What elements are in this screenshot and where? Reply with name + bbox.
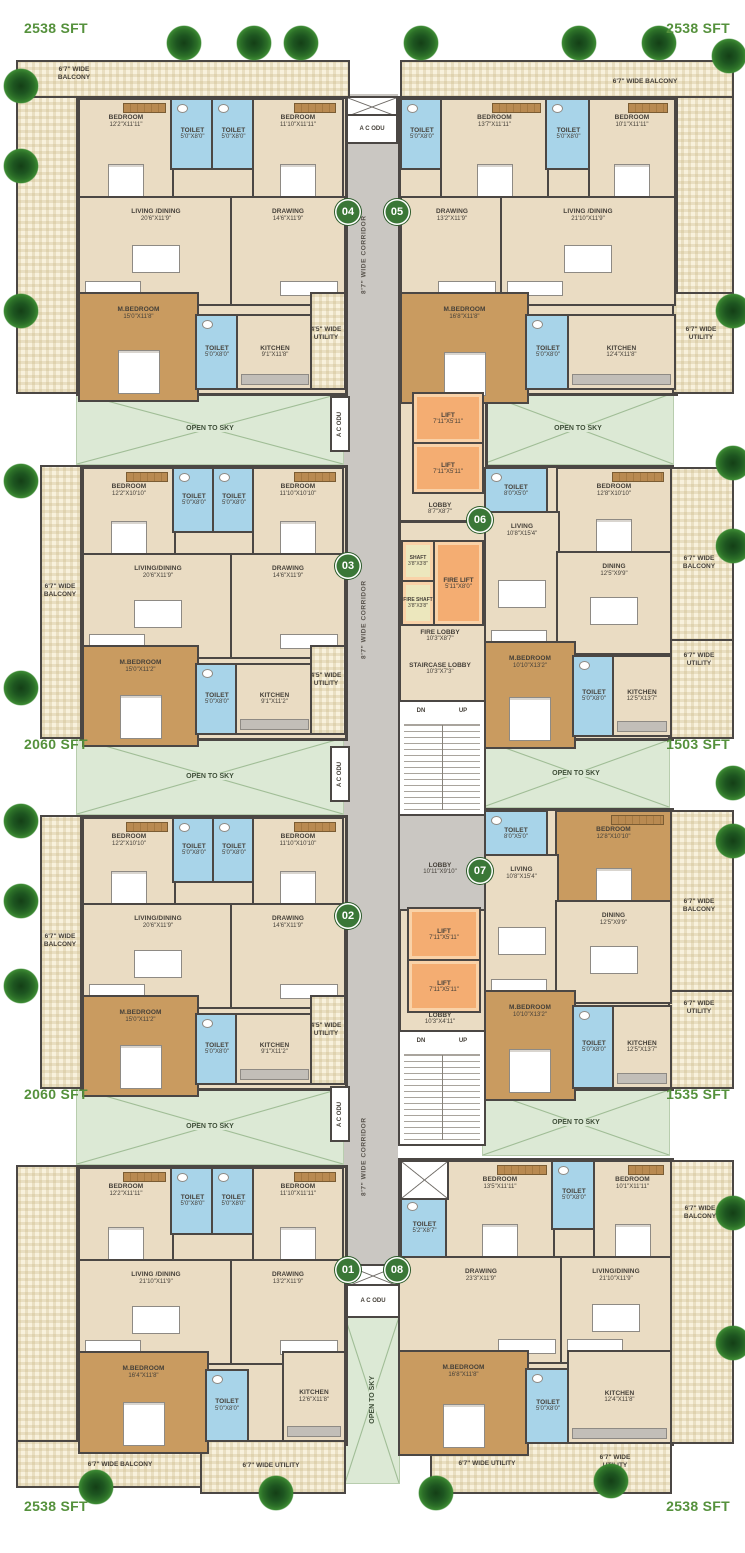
open-to-sky-strip: OPEN TO SKY (76, 1087, 344, 1165)
unit-03-utility (310, 645, 346, 735)
tree-icon (3, 803, 39, 839)
unit-08-drawing: DRAWING23'3"X11'9" (398, 1256, 564, 1364)
unit-04-master-bedroom: M.BEDROOM15'0"X11'8" (78, 292, 199, 402)
unit-03-utility-label: 4'5" WIDE UTILITY (304, 672, 348, 688)
stair-dn-label: DN (406, 708, 436, 714)
sft-bottom-right: 2538 SFT (630, 1498, 730, 1514)
unit-04-balcony-label: 6'7" WIDE BALCONY (38, 66, 110, 82)
ac-odu-label-top: A C ODU (346, 114, 398, 144)
unit-04-utility-label: 4'5" WIDE UTILITY (304, 326, 348, 342)
tree-icon (258, 1475, 294, 1511)
unit-08-living-dining: LIVING/DINING21'10"X11'9" (560, 1256, 672, 1364)
unit-04-living-dining: LIVING /DINING20'6"X11'9" (78, 196, 234, 306)
stair-dn-label: DN (406, 1038, 436, 1044)
tree-icon (3, 463, 39, 499)
tree-icon (715, 293, 745, 329)
lift-2: LIFT7'11"X5'11" (412, 442, 484, 494)
unit-03-drawing: DRAWING14'6"X11'9" (230, 553, 346, 659)
unit-07-balcony-label: 6'7" WIDE BALCONY (670, 898, 728, 914)
open-to-sky-label: OPEN TO SKY (183, 773, 237, 780)
unit-03-balcony-left (40, 465, 84, 739)
unit-03-toilet-3: TOILET5'0"X8'0" (195, 663, 239, 735)
unit-06-dining: DINING12'5"X9'9" (556, 551, 672, 655)
unit-01-toilet-2: TOILET5'0"X8'0" (211, 1167, 256, 1235)
unit-07-living: LIVING10'8"X15'4" (484, 854, 559, 1004)
unit-05-toilet-1: TOILET5'0"X8'0" (400, 98, 444, 170)
shaft: SHAFT3'8"X3'8" (401, 540, 435, 582)
unit-06-toilet-1: TOILET8'0"X5'0" (484, 467, 548, 515)
unit-badge-02: 02 (335, 903, 361, 929)
sft-mid-left-lower: 2060 SFT (24, 1086, 114, 1102)
unit-04-balcony-left (16, 96, 80, 394)
unit-badge-01: 01 (335, 1257, 361, 1283)
fire-shaft: FIRE SHAFT3'8"X3'8" (401, 580, 435, 626)
unit-05-toilet-2: TOILET5'0"X8'0" (545, 98, 592, 170)
open-to-sky-strip: OPEN TO SKY (344, 1316, 400, 1484)
unit-04-toilet-3: TOILET5'0"X8'0" (195, 314, 239, 390)
unit-badge-07: 07 (467, 858, 493, 884)
tree-icon (715, 1195, 745, 1231)
tree-icon (711, 38, 745, 74)
unit-06-utility-label: 6'7" WIDE UTILITY (670, 652, 728, 668)
unit-08-toilet-1: TOILET5'2"X8'7" (400, 1196, 449, 1260)
unit-02-balcony-label: 6'7" WIDE BALCONY (36, 933, 84, 949)
unit-03-kitchen: KITCHEN9'1"X11'2" (235, 663, 314, 735)
stair-up-label: UP (448, 1038, 478, 1044)
lift-3: LIFT7'11"X5'11" (407, 907, 481, 961)
unit-04-kitchen: KITCHEN9'1"X11'8" (236, 314, 314, 390)
open-to-sky-label: OPEN TO SKY (549, 770, 603, 777)
unit-05-utility-label: 6'7" WIDE UTILITY (674, 326, 728, 342)
unit-03-toilet-2: TOILET5'0"X8'0" (212, 467, 256, 533)
sft-mid-right-lower: 1535 SFT (645, 1086, 730, 1102)
unit-06-living: LIVING10'8"X15'4" (484, 511, 560, 655)
unit-03-living-dining: LIVING/DINING20'6"X11'9" (82, 553, 234, 659)
unit-06-master-bedroom: M.BEDROOM10'10"X13'2" (484, 641, 576, 749)
unit-07-toilet-2: TOILET5'0"X8'0" (572, 1005, 616, 1089)
unit-02-drawing: DRAWING14'6"X11'9" (230, 903, 346, 1009)
tree-icon (715, 445, 745, 481)
unit-badge-03: 03 (335, 553, 361, 579)
unit-07-master-bedroom: M.BEDROOM10'10"X13'2" (484, 990, 576, 1101)
unit-05-balcony-label: 6'7" WIDE BALCONY (580, 78, 710, 86)
unit-05-balcony-right (672, 96, 734, 298)
tree-icon (3, 68, 39, 104)
tree-icon (593, 1463, 629, 1499)
tree-icon (715, 528, 745, 564)
unit-03-master-bedroom: M.BEDROOM15'0"X11'2" (82, 645, 199, 747)
tree-icon (3, 670, 39, 706)
unit-03-balcony-label: 6'7" WIDE BALCONY (36, 583, 84, 599)
unit-02-toilet-2: TOILET5'0"X8'0" (212, 817, 256, 883)
unit-01-balcony-label: 6'7" WIDE BALCONY (55, 1461, 185, 1469)
unit-08-utility-label-left: 6'7" WIDE UTILITY (432, 1460, 542, 1468)
ac-odu-label-mid-2: A C ODU (330, 746, 350, 802)
unit-04-toilet-2: TOILET5'0"X8'0" (211, 98, 256, 170)
unit-01-drawing: DRAWING13'2"X11'9" (230, 1259, 346, 1365)
unit-08-shaft-hatch (400, 1160, 449, 1200)
unit-01-kitchen: KITCHEN12'6"X11'8" (282, 1351, 346, 1442)
unit-02-kitchen: KITCHEN9'1"X11'2" (235, 1013, 314, 1085)
unit-badge-04: 04 (335, 199, 361, 225)
unit-01-toilet-1: TOILET5'0"X8'0" (170, 1167, 215, 1235)
unit-badge-05: 05 (384, 199, 410, 225)
ac-odu-label-bottom: A C ODU (346, 1284, 400, 1318)
open-to-sky-label: OPEN TO SKY (549, 1119, 603, 1126)
unit-07-kitchen: KITCHEN12'5"X13'7" (612, 1005, 672, 1089)
unit-02-toilet-3: TOILET5'0"X8'0" (195, 1013, 239, 1085)
unit-04-drawing: DRAWING14'6"X11'9" (230, 196, 346, 306)
unit-04-toilet-1: TOILET5'0"X8'0" (170, 98, 215, 170)
unit-08-toilet-3: TOILET5'0"X8'0" (525, 1368, 571, 1444)
tree-icon (3, 148, 39, 184)
unit-05-drawing: DRAWING13'2"X11'9" (400, 196, 504, 306)
staircase-upper: DN UP (398, 700, 486, 816)
unit-05-kitchen: KITCHEN12'4"X11'8" (567, 314, 676, 390)
unit-07-dining: DINING12'5"X9'9" (555, 900, 672, 1004)
unit-05-toilet-3: TOILET5'0"X8'0" (525, 314, 571, 390)
tree-icon (418, 1475, 454, 1511)
unit-02-utility (310, 995, 346, 1085)
stair-treads (404, 1054, 480, 1140)
lobby-lower-label: LOBBY10'3"X4'11" (398, 1008, 482, 1030)
unit-02-balcony-left (40, 815, 84, 1089)
unit-02-master-bedroom: M.BEDROOM15'0"X11'2" (82, 995, 199, 1097)
tree-icon (236, 25, 272, 61)
tree-icon (3, 883, 39, 919)
open-to-sky-strip: OPEN TO SKY (482, 739, 670, 808)
sft-bottom-left: 2538 SFT (24, 1498, 114, 1514)
unit-badge-06: 06 (467, 507, 493, 533)
ac-odu-label-mid-1: A C ODU (330, 396, 350, 452)
open-to-sky-strip: OPEN TO SKY (76, 392, 344, 465)
unit-03-toilet-1: TOILET5'0"X8'0" (172, 467, 216, 533)
open-to-sky-label: OPEN TO SKY (183, 1123, 237, 1130)
unit-05-living-dining: LIVING /DINING21'10"X11'9" (500, 196, 676, 306)
sft-mid-right-upper: 1503 SFT (645, 736, 730, 752)
unit-07-toilet-1: TOILET8'0"X5'0" (484, 810, 548, 858)
unit-02-utility-label: 4'5" WIDE UTILITY (304, 1022, 348, 1038)
unit-01-balcony-left (16, 1165, 78, 1444)
unit-06-toilet-2: TOILET5'0"X8'0" (572, 655, 616, 737)
staircase-lobby-label: STAIRCASE LOBBY10'3"X7'3" (398, 652, 482, 686)
tree-icon (3, 968, 39, 1004)
unit-05-master-bedroom: M.BEDROOM16'8"X11'8" (400, 292, 529, 404)
unit-01-living-dining: LIVING /DINING21'10"X11'9" (78, 1259, 234, 1365)
open-to-sky-label: OPEN TO SKY (183, 425, 237, 432)
tree-icon (561, 25, 597, 61)
unit-08-kitchen: KITCHEN12'4"X11'8" (567, 1350, 672, 1444)
open-to-sky-label: OPEN TO SKY (551, 425, 605, 432)
fire-lift: FIRE LIFT5'11"X8'0" (433, 540, 484, 626)
unit-01-utility-label: 6'7" WIDE UTILITY (205, 1462, 337, 1470)
corridor-label-lower: 8'7" WIDE CORRIDOR (352, 1082, 376, 1232)
unit-08-toilet-2: TOILET5'0"X8'0" (551, 1160, 597, 1230)
unit-06-kitchen: KITCHEN12'5"X13'7" (612, 655, 672, 737)
lift-1: LIFT7'11"X5'11" (412, 392, 484, 444)
tree-icon (715, 765, 745, 801)
open-to-sky-strip: OPEN TO SKY (76, 737, 344, 815)
stair-treads (404, 724, 480, 810)
unit-08-master-bedroom: M.BEDROOM16'8"X11'8" (398, 1350, 529, 1456)
unit-badge-08: 08 (384, 1257, 410, 1283)
sft-mid-left-upper: 2060 SFT (24, 736, 114, 752)
tree-icon (715, 823, 745, 859)
sft-top-right: 2538 SFT (640, 20, 730, 36)
unit-02-living-dining: LIVING/DINING20'6"X11'9" (82, 903, 234, 1009)
tree-icon (715, 1325, 745, 1361)
tree-icon (403, 25, 439, 61)
fire-lobby-label: FIRE LOBBY10'3"X8'7" (398, 626, 482, 646)
unit-01-master-bedroom: M.BEDROOM16'4"X11'8" (78, 1351, 209, 1454)
staircase-lower: DN UP (398, 1030, 486, 1146)
stair-up-label: UP (448, 708, 478, 714)
floor-plan-canvas: OPEN TO SKY OPEN TO SKY OPEN TO SKY OPEN… (0, 0, 745, 1553)
ac-odu-label-mid-3: A C ODU (330, 1086, 350, 1142)
tree-icon (166, 25, 202, 61)
unit-07-utility-label: 6'7" WIDE UTILITY (670, 1000, 728, 1016)
unit-01-toilet-3: TOILET5'0"X8'0" (205, 1369, 249, 1442)
tree-icon (283, 25, 319, 61)
tree-icon (3, 293, 39, 329)
lift-4: LIFT7'11"X5'11" (407, 959, 481, 1013)
unit-02-toilet-1: TOILET5'0"X8'0" (172, 817, 216, 883)
open-to-sky-label: OPEN TO SKY (369, 1373, 376, 1427)
sft-top-left: 2538 SFT (24, 20, 114, 36)
